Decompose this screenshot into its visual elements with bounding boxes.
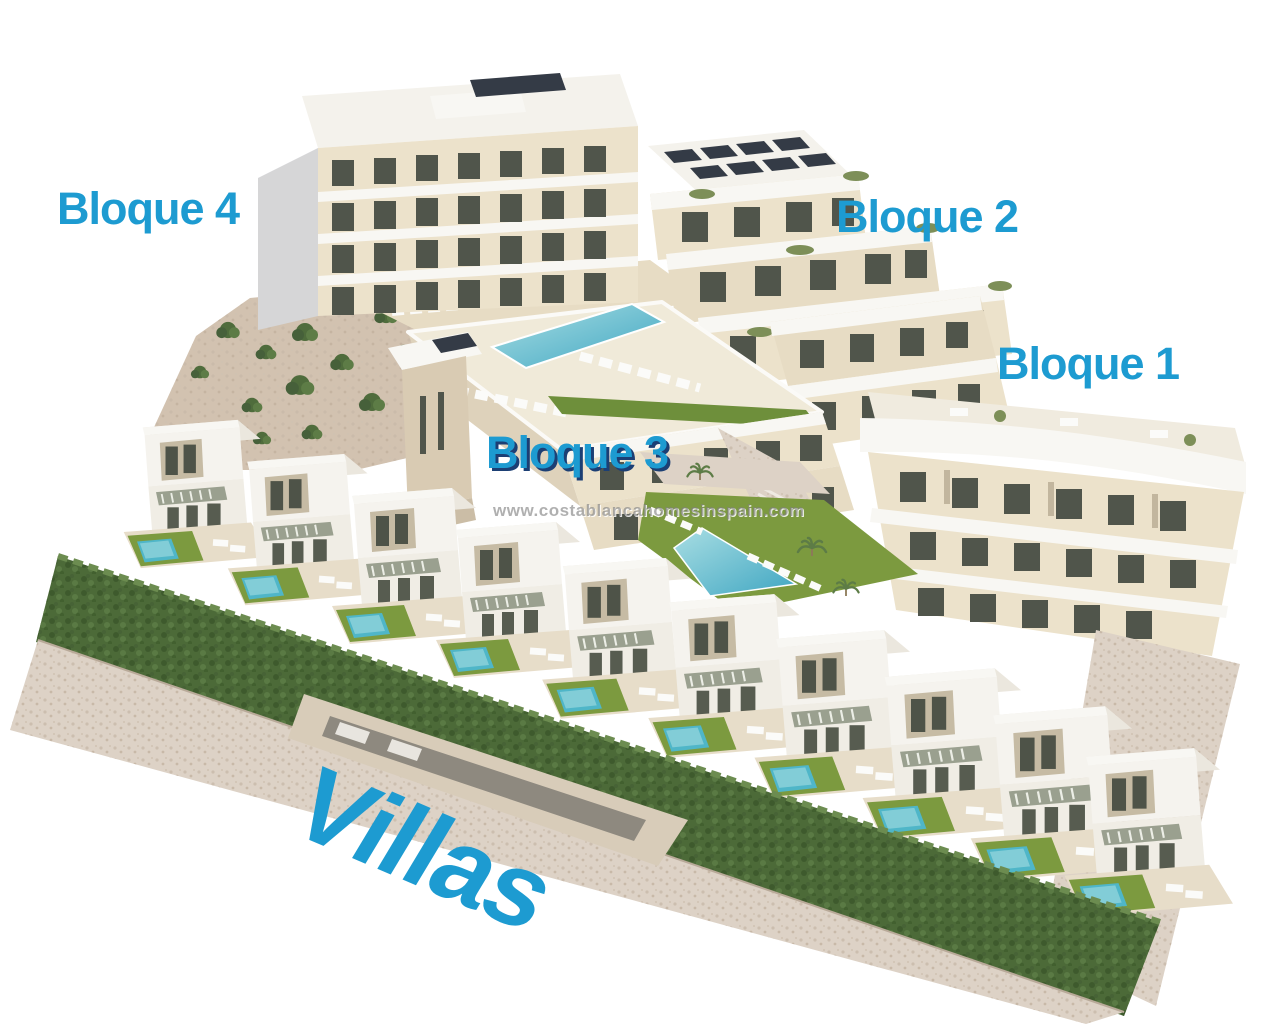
- bloque1-building: [860, 392, 1246, 656]
- render-canvas: Bloque 4 Bloque 2 Bloque 1 Bloque 3 Vill…: [0, 0, 1280, 1024]
- palm-tree: [833, 580, 858, 596]
- label-bloque-1: Bloque 1: [997, 341, 1179, 386]
- label-bloque-2: Bloque 2: [836, 194, 1018, 239]
- watermark-text: www.costablancahomesinspain.com: [493, 501, 805, 521]
- label-bloque-3: Bloque 3: [486, 430, 668, 475]
- label-bloque-4: Bloque 4: [57, 186, 239, 231]
- bloque4-building: [258, 73, 638, 330]
